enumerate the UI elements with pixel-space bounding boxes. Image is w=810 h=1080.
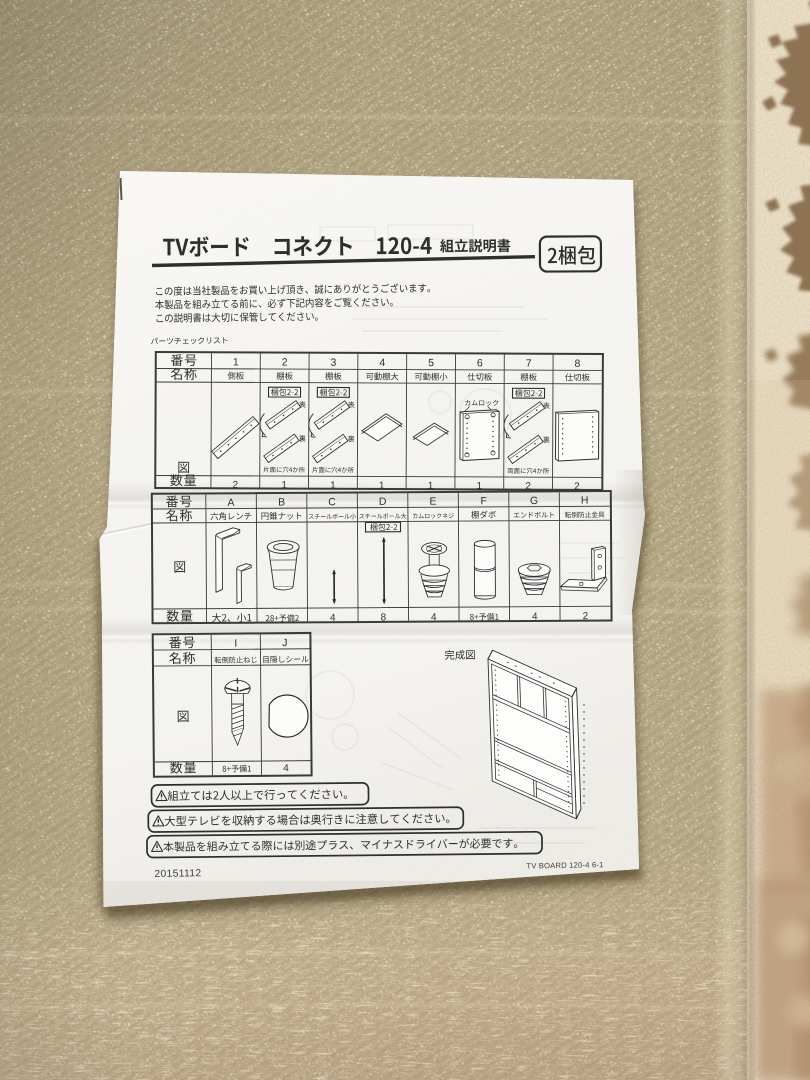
svg-text:1: 1 [281,480,287,491]
svg-text:A: A [228,497,235,509]
svg-text:2: 2 [525,481,531,492]
svg-text:8: 8 [575,358,581,370]
svg-text:20151112: 20151112 [154,868,201,880]
svg-text:2: 2 [233,480,239,491]
svg-text:4: 4 [283,763,289,774]
svg-text:8: 8 [381,612,387,623]
svg-text:4: 4 [431,612,437,623]
svg-text:E: E [430,496,437,508]
svg-text:B: B [278,496,285,508]
svg-text:2: 2 [282,357,288,369]
svg-text:6: 6 [477,357,483,369]
svg-text:2: 2 [583,611,589,622]
svg-text:C: C [328,496,336,508]
svg-text:1: 1 [233,356,239,368]
svg-text:1: 1 [477,481,483,492]
svg-text:4: 4 [532,611,538,622]
svg-text:I: I [234,638,237,650]
svg-text:5: 5 [428,357,434,369]
svg-text:D: D [379,496,387,508]
svg-text:4: 4 [379,357,385,369]
svg-text:F: F [480,495,486,507]
svg-text:TV BOARD 120-4 6-1: TV BOARD 120-4 6-1 [526,860,603,870]
svg-text:7: 7 [526,358,532,370]
svg-text:H: H [581,495,589,507]
svg-text:3: 3 [331,357,337,369]
svg-text:4: 4 [330,613,336,624]
svg-text:J: J [282,637,287,649]
svg-text:1: 1 [379,480,385,491]
svg-text:1: 1 [330,480,336,491]
svg-text:G: G [530,495,538,507]
svg-text:1: 1 [428,481,434,492]
